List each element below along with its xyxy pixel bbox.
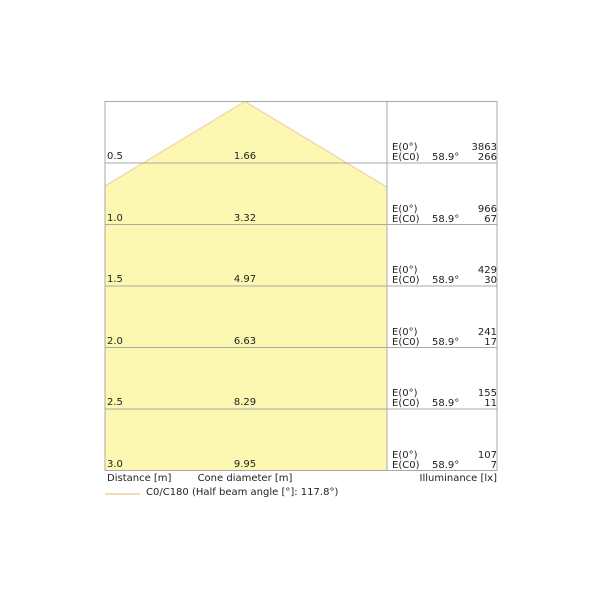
- cone-diameter-value: 1.66: [150, 152, 340, 162]
- half-beam-angle-value: 58.9°: [432, 338, 459, 348]
- half-beam-angle-value: 58.9°: [432, 153, 459, 163]
- illuminance-plane-labels: E(0°)E(C0): [392, 451, 419, 471]
- cone-row: 2.0 6.63 E(0°)E(C0) 58.9° 24117: [105, 327, 497, 348]
- cone-row: 1.5 4.97 E(0°)E(C0) 58.9° 42930: [105, 265, 497, 286]
- illuminance-plane-labels: E(0°)E(C0): [392, 205, 419, 225]
- illuminance-values: 24117: [478, 328, 497, 348]
- distance-value: 1.0: [107, 214, 123, 224]
- cone-diameter-axis-label: Cone diameter [m]: [150, 474, 340, 484]
- cone-row: 3.0 9.95 E(0°)E(C0) 58.9° 1077: [105, 450, 497, 471]
- half-beam-angle-value: 58.9°: [432, 399, 459, 409]
- cone-diagram: 0.5 1.66 E(0°)E(C0) 58.9° 3863266 1.0 3.…: [0, 0, 600, 600]
- illuminance-plane-labels: E(0°)E(C0): [392, 143, 419, 163]
- half-beam-angle-value: 58.9°: [432, 215, 459, 225]
- distance-value: 2.5: [107, 398, 123, 408]
- illuminance-values: 3863266: [472, 143, 497, 163]
- cone-diameter-value: 6.63: [150, 337, 340, 347]
- cone-diameter-value: 8.29: [150, 398, 340, 408]
- half-beam-angle-value: 58.9°: [432, 276, 459, 286]
- distance-value: 3.0: [107, 460, 123, 470]
- cone-row: 1.0 3.32 E(0°)E(C0) 58.9° 96667: [105, 204, 497, 225]
- illuminance-values: 1077: [478, 451, 497, 471]
- distance-value: 0.5: [107, 152, 123, 162]
- illuminance-values: 96667: [478, 205, 497, 225]
- legend-line-swatch: [105, 493, 140, 495]
- cone-row: 2.5 8.29 E(0°)E(C0) 58.9° 15511: [105, 388, 497, 409]
- illuminance-values: 42930: [478, 266, 497, 286]
- cone-diameter-value: 9.95: [150, 460, 340, 470]
- illuminance-values: 15511: [478, 389, 497, 409]
- illuminance-plane-labels: E(0°)E(C0): [392, 389, 419, 409]
- illuminance-plane-labels: E(0°)E(C0): [392, 266, 419, 286]
- cone-plot: [0, 0, 600, 600]
- distance-value: 2.0: [107, 337, 123, 347]
- cone-diameter-value: 4.97: [150, 275, 340, 285]
- illuminance-axis-label: Illuminance [lx]: [420, 474, 498, 484]
- cone-row: 0.5 1.66 E(0°)E(C0) 58.9° 3863266: [105, 142, 497, 163]
- cone-diameter-value: 3.32: [150, 214, 340, 224]
- illuminance-plane-labels: E(0°)E(C0): [392, 328, 419, 348]
- legend-label: C0/C180 (Half beam angle [°]: 117.8°): [146, 487, 338, 499]
- half-beam-angle-value: 58.9°: [432, 461, 459, 471]
- distance-value: 1.5: [107, 275, 123, 285]
